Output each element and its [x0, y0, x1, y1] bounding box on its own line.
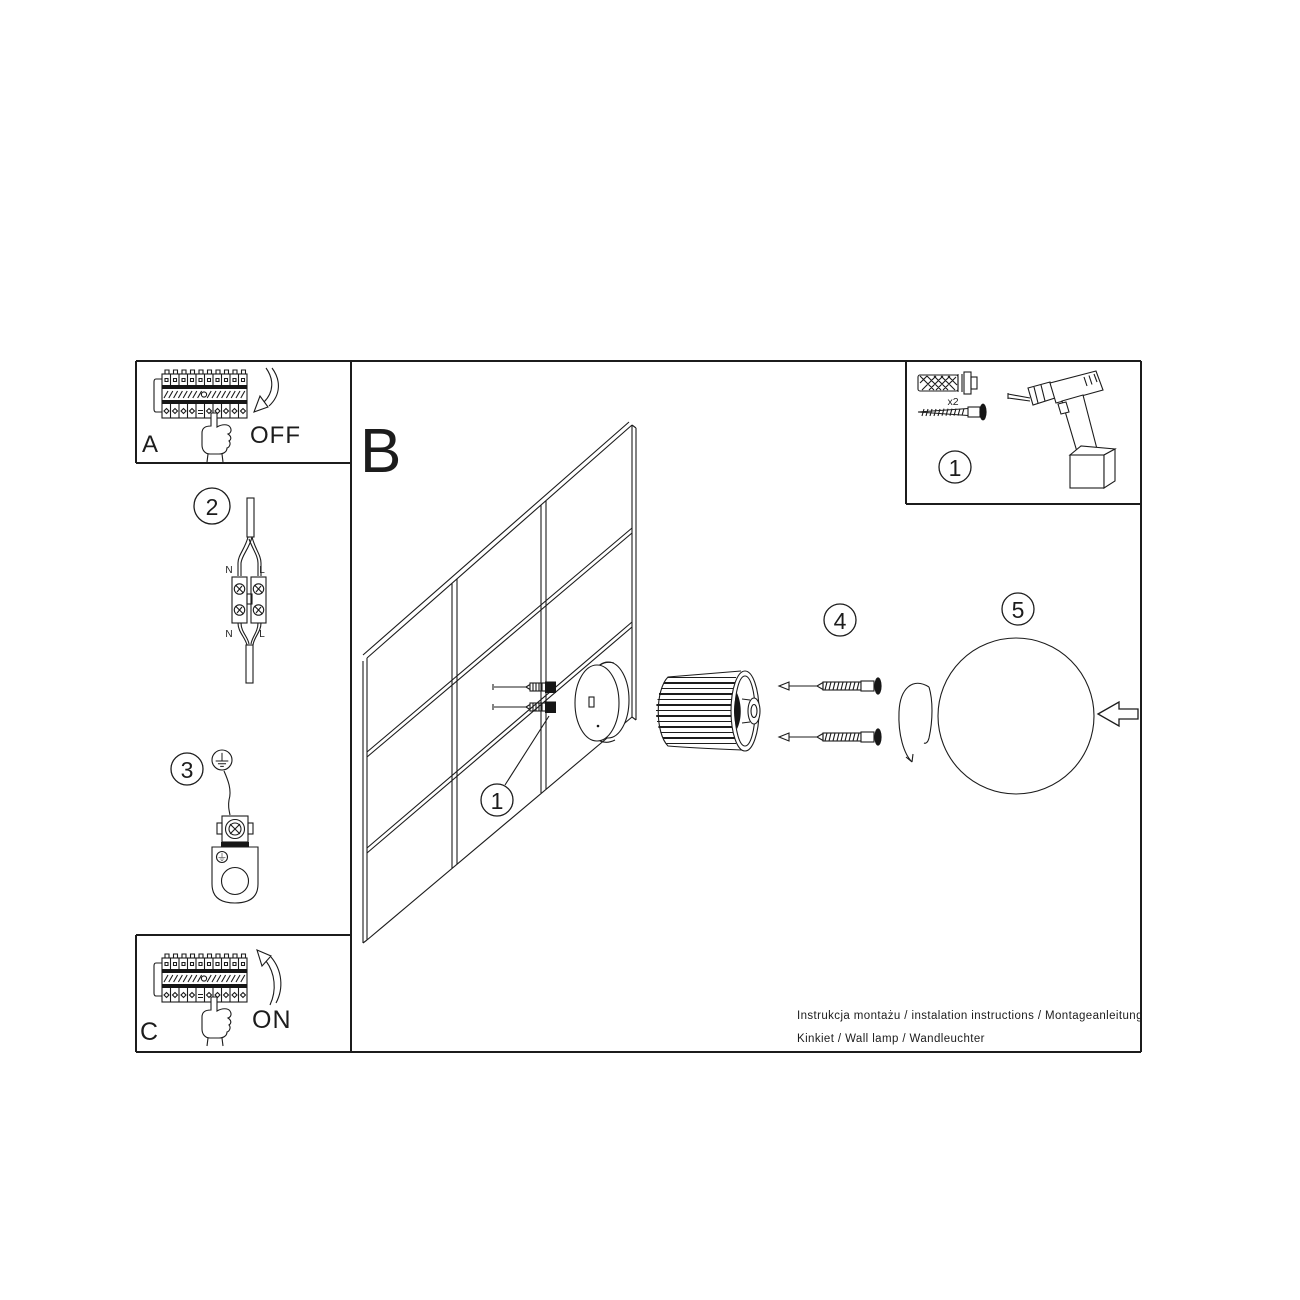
wall-anchor-icon	[918, 372, 977, 394]
section-a-power-off: A OFF	[142, 368, 301, 462]
mounting-screws-drawing: 4	[779, 604, 882, 746]
ground-terminal-drawing: 3	[171, 750, 258, 903]
on-arrow-icon	[257, 950, 281, 1005]
footer-line1: Instrukcja montażu / instalation instruc…	[797, 1010, 1143, 1022]
direction-arrow-icon	[1098, 702, 1138, 726]
off-arrow-icon	[254, 368, 278, 412]
wire-l-bottom: L	[259, 629, 265, 640]
wire-connector-drawing: 2 N L N L	[194, 488, 266, 683]
pointing-hand-icon	[202, 997, 231, 1046]
drill-icon	[1008, 371, 1115, 488]
on-label: ON	[252, 1006, 292, 1034]
glass-ball-drawing: 5	[938, 593, 1094, 794]
breaker-panel-icon	[154, 370, 247, 418]
step2-badge: 2	[206, 494, 219, 520]
wire-n-top: N	[225, 565, 232, 576]
parts-box: x2 1	[918, 371, 1115, 488]
installation-instruction-sheet: A OFF C ON 2 N L N L	[0, 0, 1300, 1300]
step3-badge: 3	[181, 757, 194, 783]
parts-badge: 1	[949, 455, 962, 481]
terminal-screws	[234, 584, 263, 615]
anchor-qty-label: x2	[947, 396, 958, 408]
section-c-label: C	[140, 1018, 158, 1046]
wire-l-top: L	[259, 565, 265, 576]
pointing-hand-icon	[202, 413, 231, 462]
earth-symbol-icon	[212, 750, 232, 770]
mounting-plate-drawing	[575, 662, 629, 742]
cable-loop-drawing	[899, 683, 932, 762]
step4-badge: 4	[834, 608, 847, 634]
footer-line2: Kinkiet / Wall lamp / Wandleuchter	[797, 1033, 985, 1045]
lamp-shade-drawing	[656, 671, 760, 751]
page-frame	[136, 361, 1141, 1052]
step5-badge: 5	[1012, 597, 1025, 623]
footer: Instrukcja montażu / instalation instruc…	[797, 1010, 1143, 1045]
section-a-label: A	[142, 431, 158, 458]
step1-wall-badge: 1	[491, 788, 504, 814]
wire-n-bottom: N	[225, 629, 232, 640]
section-c-power-on: C ON	[140, 950, 292, 1046]
breaker-panel-icon	[154, 954, 247, 1002]
off-label: OFF	[250, 422, 301, 449]
section-b-label: B	[360, 417, 401, 486]
